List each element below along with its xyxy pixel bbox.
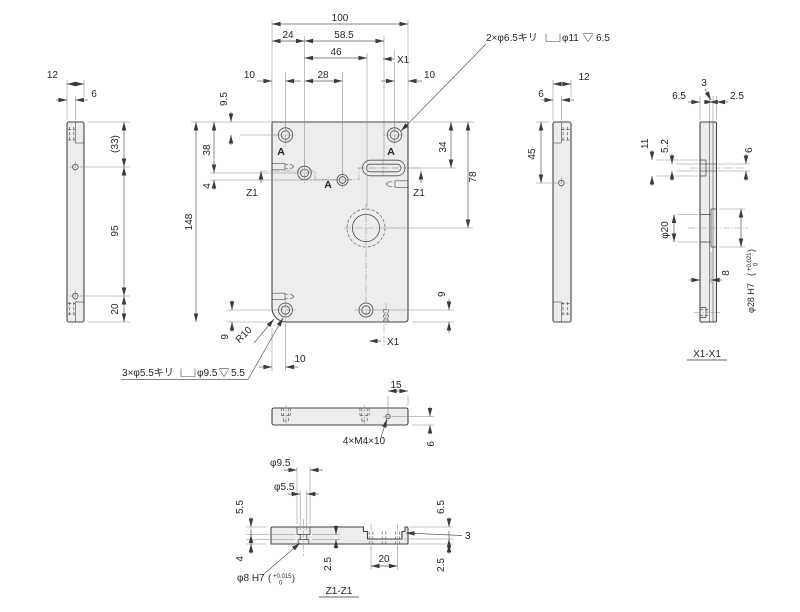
- dim-58-5: 58.5: [334, 30, 354, 41]
- section-z1-left: Z1: [246, 188, 258, 199]
- z1-dim-3: 3: [465, 531, 471, 542]
- z1-fit-label: φ8 H7 ( +0.015 0 ): [237, 573, 295, 587]
- bottom-dim-15: 15: [390, 380, 402, 391]
- bore-fit-main: φ28 H7: [746, 283, 756, 313]
- hole-label-a3: A: [324, 179, 332, 191]
- x1-dim-2-5: 2.5: [730, 91, 744, 102]
- cad-drawing-canvas: A A A 100 24 58.5 46 10 28 10: [0, 0, 800, 612]
- x1-dim-6: 6: [744, 147, 755, 153]
- depth-icon: [583, 34, 593, 42]
- dim-28: 28: [317, 70, 329, 81]
- front-view: A A A: [272, 122, 409, 326]
- dim-4: 4: [202, 183, 213, 189]
- pin-fit-paren-close: ): [292, 573, 295, 583]
- section-z1-right: Z1: [413, 188, 425, 199]
- right-side-view: 12 6 45: [527, 72, 590, 322]
- left-dim-33: (33): [110, 135, 121, 153]
- dim-148: 148: [184, 213, 195, 230]
- bore-fit-lower: 0: [754, 262, 760, 266]
- z1-dim-20: 20: [378, 554, 390, 565]
- callout-top-bore: φ11: [562, 33, 579, 44]
- right-dim-6: 6: [538, 89, 544, 100]
- x1-dim-11: 11: [640, 138, 651, 149]
- z1-section-title: Z1-Z1: [326, 586, 353, 597]
- z1-section-view: φ9.5 φ5.5 5.5 4 2.5 20 6.5 3 2.5: [235, 458, 471, 597]
- x1-bore-fit-label: φ28 H7 ( +0.021 0 ): [746, 249, 760, 313]
- bore-fit-paren-close: ): [746, 249, 756, 252]
- dim-9-5: 9.5: [219, 92, 230, 106]
- dim-46: 46: [330, 47, 342, 58]
- callout-bottom-bore: φ9.5: [197, 368, 218, 379]
- section-x1-top: X1: [397, 55, 410, 66]
- x1-dim-3: 3: [701, 78, 707, 89]
- dim-34: 34: [438, 141, 449, 153]
- callout-top-depth: 6.5: [596, 33, 610, 44]
- depth-icon: [219, 369, 229, 377]
- left-dim-95: 95: [110, 225, 121, 237]
- hole-label-a2: A: [387, 146, 395, 158]
- dim-38: 38: [202, 144, 213, 156]
- bottom-dim-6: 6: [426, 441, 437, 447]
- x1-section-view: 6.5 2.5 3 11 5.2 φ20 6 8 φ28 H7 ( +0.021: [640, 78, 760, 360]
- x1-dim-8: 8: [721, 270, 732, 276]
- z1-dim-phi5-5: φ5.5: [274, 482, 295, 493]
- counterbore-icon: [181, 369, 195, 377]
- pin-fit-main: φ8 H7: [237, 573, 265, 584]
- z1-dim-2-5-mid: 2.5: [323, 557, 334, 571]
- callout-counterbore-bottom: 3×φ5.5キリ φ9.5 5.5: [121, 318, 283, 380]
- z1-dim-phi9-5: φ9.5: [270, 458, 291, 469]
- x1-section-title: X1-X1: [693, 349, 721, 360]
- left-side-view: 12 6 (33) 95 20: [47, 70, 130, 322]
- pin-fit-upper: +0.015: [273, 574, 292, 580]
- front-dims-bottom: 10 R10: [234, 319, 306, 371]
- x1-dim-5-2: 5.2: [660, 139, 671, 153]
- callout-bottom-depth: 5.5: [231, 368, 245, 379]
- left-dim-6: 6: [91, 89, 97, 100]
- dim-9-bottom-left: 9: [220, 334, 231, 340]
- z1-dim-2-5-right: 2.5: [436, 558, 447, 572]
- bore-fit-upper: +0.021: [747, 252, 753, 271]
- left-dim-12: 12: [47, 70, 59, 81]
- dim-9-bottom-right: 9: [437, 291, 448, 297]
- dim-78: 78: [468, 171, 479, 183]
- z1-dim-5-5: 5.5: [235, 500, 246, 514]
- tap-callout: 4×M4×10: [343, 436, 386, 447]
- counterbore-icon: [546, 34, 560, 42]
- pin-fit-lower: 0: [279, 581, 283, 587]
- corner-radius-label: R10: [234, 325, 255, 346]
- dim-100: 100: [332, 13, 349, 24]
- z1-dim-4: 4: [235, 556, 246, 562]
- dim-10-right: 10: [424, 70, 436, 81]
- bottom-view: 15 6 4×M4×10: [272, 380, 437, 447]
- dim-10-bottom: 10: [294, 354, 306, 365]
- x1-dim-6-5: 6.5: [672, 91, 686, 102]
- left-dim-20: 20: [110, 303, 121, 315]
- dim-24: 24: [282, 30, 294, 41]
- right-dim-12: 12: [578, 72, 590, 83]
- dim-10-left: 10: [244, 70, 256, 81]
- bore-fit-paren-open: (: [746, 273, 756, 276]
- z1-recess-holes: [369, 524, 399, 549]
- callout-top-prefix: 2×φ6.5キリ: [486, 33, 538, 44]
- pin-fit-paren-open: (: [268, 573, 271, 583]
- callout-bottom-prefix: 3×φ5.5キリ: [122, 368, 174, 379]
- z1-dim-6-5: 6.5: [436, 500, 447, 514]
- right-dim-45: 45: [527, 148, 538, 160]
- technical-drawing: A A A 100 24 58.5 46 10 28 10: [0, 0, 800, 612]
- hole-label-a1: A: [277, 146, 285, 158]
- section-x1-bottom: X1: [387, 337, 400, 348]
- x1-dim-phi20: φ20: [660, 221, 671, 239]
